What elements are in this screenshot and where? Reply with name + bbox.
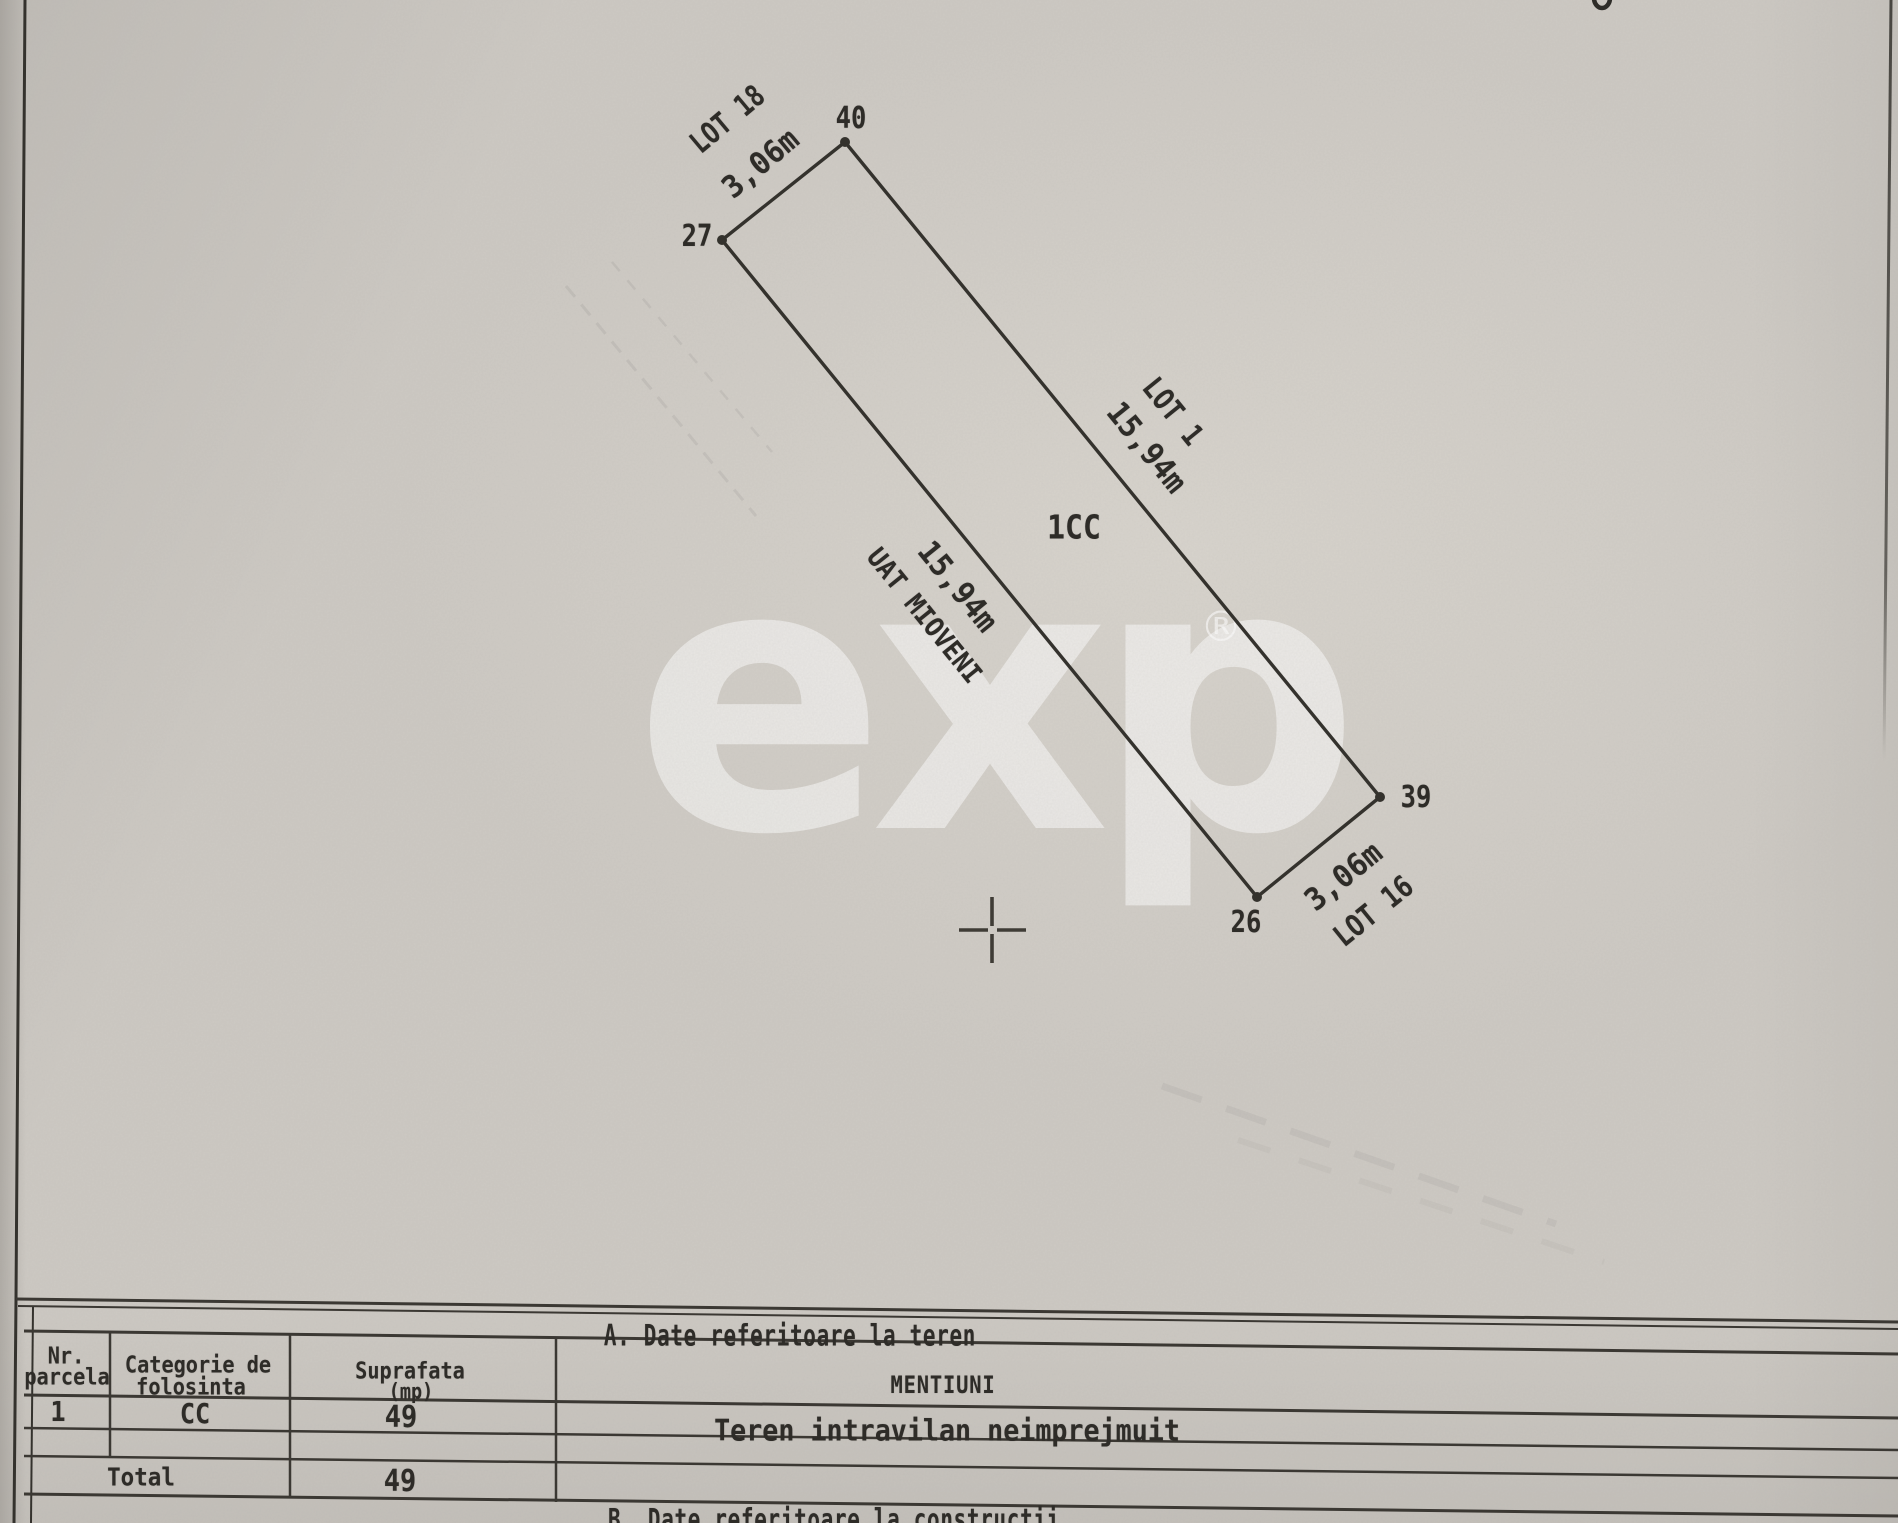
row1-categorie: CC [180,1400,210,1428]
point-label-40: 40 [836,104,867,134]
plan-linework [0,0,1898,1523]
scanned-cadastral-plan: exp ® [0,0,1898,1523]
paper-grain-texture [0,0,1898,1523]
col-header-nr-line2: parcela [24,1367,109,1390]
row1-mentiuni: Teren intravilan neimprejmuit [714,1417,1180,1446]
vertex-point-27 [717,235,727,245]
point-label-39: 39 [1401,783,1432,813]
vertex-point-40 [840,137,850,147]
row1-nr-parcela: 1 [50,1398,65,1426]
total-label: Total [107,1465,175,1490]
parcel-code-label: 1CC [1047,511,1101,544]
section-b-title: B. Date referitoare la constructii [608,1506,1060,1523]
vertex-point-26 [1252,892,1262,902]
total-suprafata: 49 [384,1467,417,1497]
col-header-mentiuni: MENTIUNI [890,1373,995,1397]
point-label-27: 27 [682,222,713,252]
row1-suprafata: 49 [385,1403,418,1433]
vertex-point-39 [1375,792,1385,802]
table-a-title: A. Date referitoare la teren [604,1322,976,1351]
point-label-26: 26 [1231,908,1262,938]
